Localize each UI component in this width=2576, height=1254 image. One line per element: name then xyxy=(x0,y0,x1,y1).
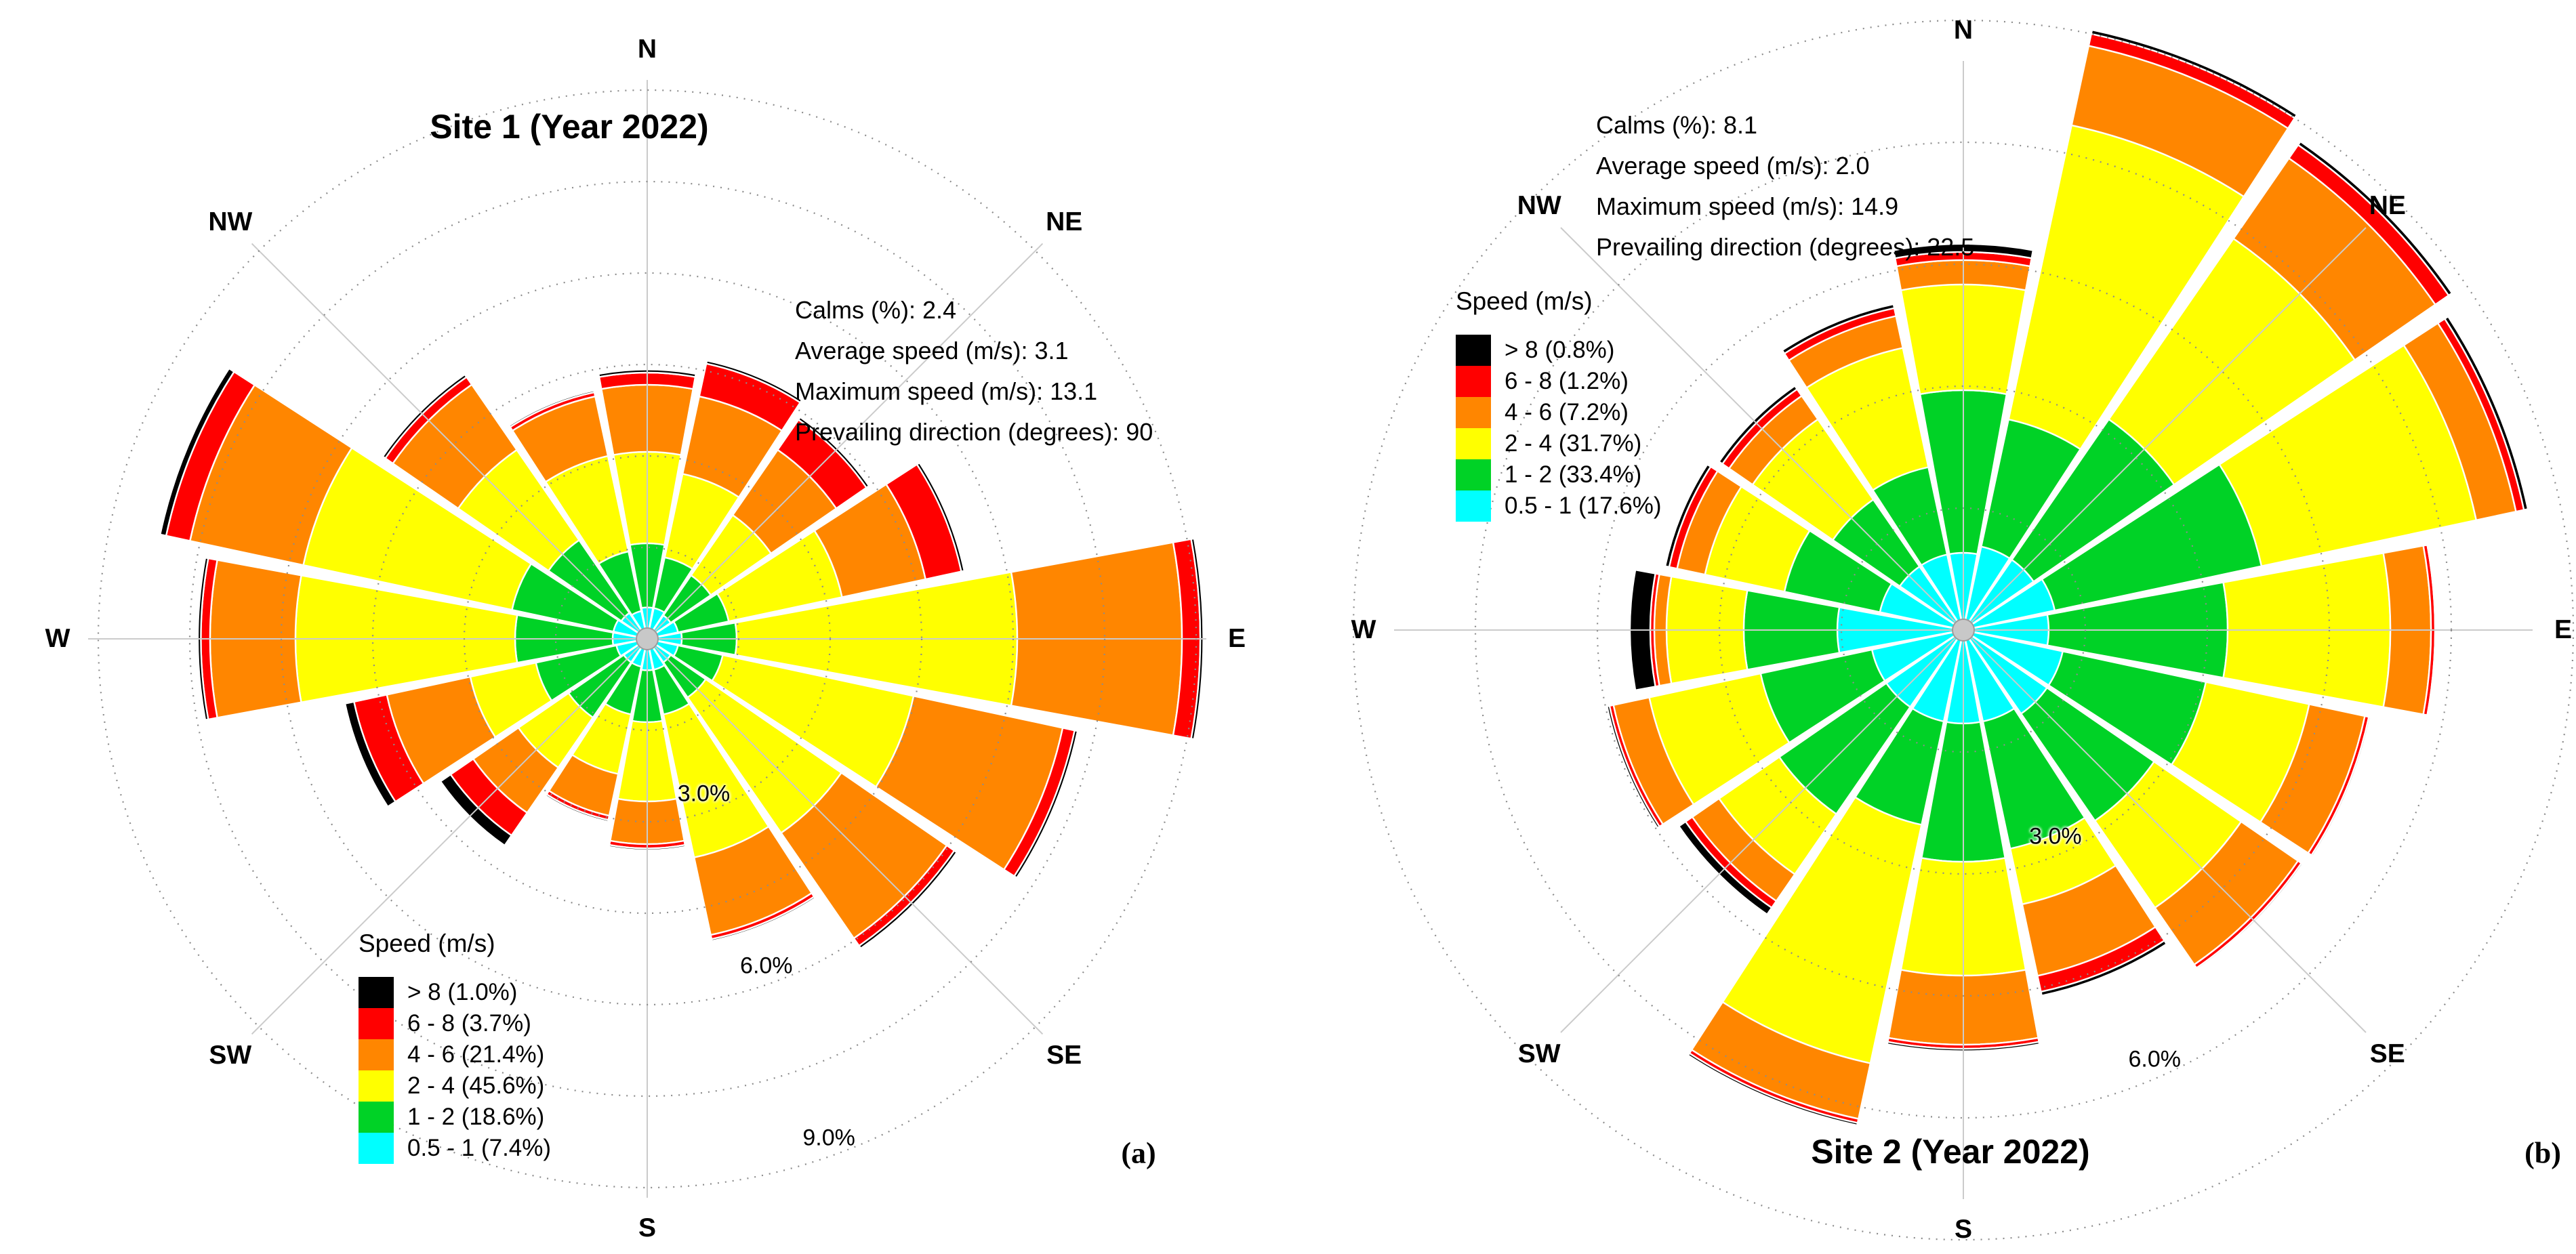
site2-legend-swatch-bin_2_4 xyxy=(1456,428,1491,459)
site2-legend: Speed (m/s) > 8 (0.8%)6 - 8 (1.2%)4 - 6 … xyxy=(1456,287,1662,522)
site2-ring-label-6.0%: 6.0% xyxy=(2129,1047,2182,1073)
site1-compass-label-SE: SE xyxy=(1046,1041,1082,1070)
site1-legend-label: 0.5 - 1 (7.4%) xyxy=(407,1135,551,1162)
site2-legend-item: 0.5 - 1 (17.6%) xyxy=(1456,490,1662,522)
site2-legend-label: 2 - 4 (31.7%) xyxy=(1505,430,1641,457)
site1-legend-swatch-bin_gt8 xyxy=(359,977,394,1008)
site1-legend-item: 0.5 - 1 (7.4%) xyxy=(359,1133,551,1164)
site2-legend-item: 6 - 8 (1.2%) xyxy=(1456,366,1662,397)
site2-legend-rows: > 8 (0.8%)6 - 8 (1.2%)4 - 6 (7.2%)2 - 4 … xyxy=(1456,335,1662,522)
site1-legend-rows: > 8 (1.0%)6 - 8 (3.7%)4 - 6 (21.4%)2 - 4… xyxy=(359,977,551,1164)
site2-compass-label-SW: SW xyxy=(1518,1039,1561,1069)
site2-legend-label: 4 - 6 (7.2%) xyxy=(1505,399,1629,426)
site2-legend-swatch-bin_0_5_1 xyxy=(1456,490,1491,522)
site2-legend-swatch-bin_gt8 xyxy=(1456,335,1491,366)
site1-ring-label-6.0%: 6.0% xyxy=(740,953,793,980)
site1-legend-label: 1 - 2 (18.6%) xyxy=(407,1104,544,1131)
site2-compass-label-N: N xyxy=(1954,16,1973,45)
site1-compass-label-NW: NW xyxy=(208,207,252,237)
site1-ring-label-3.0%: 3.0% xyxy=(678,781,731,808)
site1-ring-label-9.0%: 9.0% xyxy=(802,1125,855,1151)
site1-compass-label-W: W xyxy=(45,624,70,654)
site2-legend-label: 1 - 2 (33.4%) xyxy=(1505,461,1641,488)
site2-title: Site 2 (Year 2022) xyxy=(1811,1132,2089,1171)
site1-legend: Speed (m/s) > 8 (1.0%)6 - 8 (3.7%)4 - 6 … xyxy=(359,929,551,1164)
site2-compass-label-SE: SE xyxy=(2370,1039,2405,1069)
site2-legend-item: 4 - 6 (7.2%) xyxy=(1456,397,1662,428)
site2-hub xyxy=(1953,619,1974,641)
site1-legend-item: 4 - 6 (21.4%) xyxy=(359,1039,551,1070)
site1-legend-label: 6 - 8 (3.7%) xyxy=(407,1010,531,1037)
site1-hub xyxy=(636,628,658,650)
site2-legend-swatch-bin_6_8 xyxy=(1456,366,1491,397)
site1-legend-item: 2 - 4 (45.6%) xyxy=(359,1070,551,1102)
site2-legend-swatch-bin_4_6 xyxy=(1456,397,1491,428)
site1-stats-calms: Calms (%): 2.4 xyxy=(795,290,1153,331)
site1-stats-max-speed: Maximum speed (m/s): 13.1 xyxy=(795,371,1153,412)
site1-compass-label-S: S xyxy=(638,1213,656,1243)
site1-legend-item: > 8 (1.0%) xyxy=(359,977,551,1008)
site2-compass-label-E: E xyxy=(2554,615,2572,645)
site1-legend-label: 2 - 4 (45.6%) xyxy=(407,1072,544,1100)
site2-legend-item: > 8 (0.8%) xyxy=(1456,335,1662,366)
site2-compass-label-S: S xyxy=(1955,1215,1972,1245)
site2-legend-item: 2 - 4 (31.7%) xyxy=(1456,428,1662,459)
site1-legend-item: 6 - 8 (3.7%) xyxy=(359,1008,551,1039)
site2-stats-calms: Calms (%): 8.1 xyxy=(1596,105,1974,146)
site1-legend-swatch-bin_1_2 xyxy=(359,1102,394,1133)
site1-legend-title: Speed (m/s) xyxy=(359,929,551,958)
site2-compass-label-W: W xyxy=(1351,615,1376,645)
site1-legend-item: 1 - 2 (18.6%) xyxy=(359,1102,551,1133)
panel-a-marker: (a) xyxy=(1121,1136,1156,1171)
site2-legend-label: > 8 (0.8%) xyxy=(1505,337,1614,364)
site2-ring-label-3.0%: 3.0% xyxy=(2029,824,2082,850)
site2-legend-item: 1 - 2 (33.4%) xyxy=(1456,459,1662,490)
site1-compass-label-SW: SW xyxy=(209,1041,251,1070)
site2-stats-prevailing: Prevailing direction (degrees): 22.5 xyxy=(1596,227,1974,268)
wind-rose-figure: Site 1 (Year 2022) Site 2 (Year 2022) Ca… xyxy=(0,0,2576,1254)
site1-compass-label-NE: NE xyxy=(1046,207,1082,237)
site1-compass-label-N: N xyxy=(638,35,657,64)
site2-legend-label: 6 - 8 (1.2%) xyxy=(1505,368,1629,395)
site2-compass-label-NW: NW xyxy=(1517,191,1561,221)
site1-title: Site 1 (Year 2022) xyxy=(430,107,708,146)
site2-legend-title: Speed (m/s) xyxy=(1456,287,1662,316)
site2-stats-max-speed: Maximum speed (m/s): 14.9 xyxy=(1596,186,1974,227)
panel-b-marker: (b) xyxy=(2524,1136,2561,1171)
site2-stats: Calms (%): 8.1 Average speed (m/s): 2.0 … xyxy=(1596,105,1974,268)
site1-stats-prevailing: Prevailing direction (degrees): 90 xyxy=(795,412,1153,453)
site1-compass-label-E: E xyxy=(1228,624,1246,654)
site1-legend-swatch-bin_6_8 xyxy=(359,1008,394,1039)
site1-legend-label: 4 - 6 (21.4%) xyxy=(407,1041,544,1068)
site1-legend-swatch-bin_4_6 xyxy=(359,1039,394,1070)
site1-legend-swatch-bin_0_5_1 xyxy=(359,1133,394,1164)
site2-legend-label: 0.5 - 1 (17.6%) xyxy=(1505,493,1662,520)
site2-compass-label-NE: NE xyxy=(2369,191,2406,221)
site1-stats: Calms (%): 2.4 Average speed (m/s): 3.1 … xyxy=(795,290,1153,453)
site2-stats-avg-speed: Average speed (m/s): 2.0 xyxy=(1596,146,1974,186)
site1-stats-avg-speed: Average speed (m/s): 3.1 xyxy=(795,331,1153,371)
site1-legend-swatch-bin_2_4 xyxy=(359,1070,394,1102)
site2-legend-swatch-bin_1_2 xyxy=(1456,459,1491,490)
site1-legend-label: > 8 (1.0%) xyxy=(407,979,517,1006)
